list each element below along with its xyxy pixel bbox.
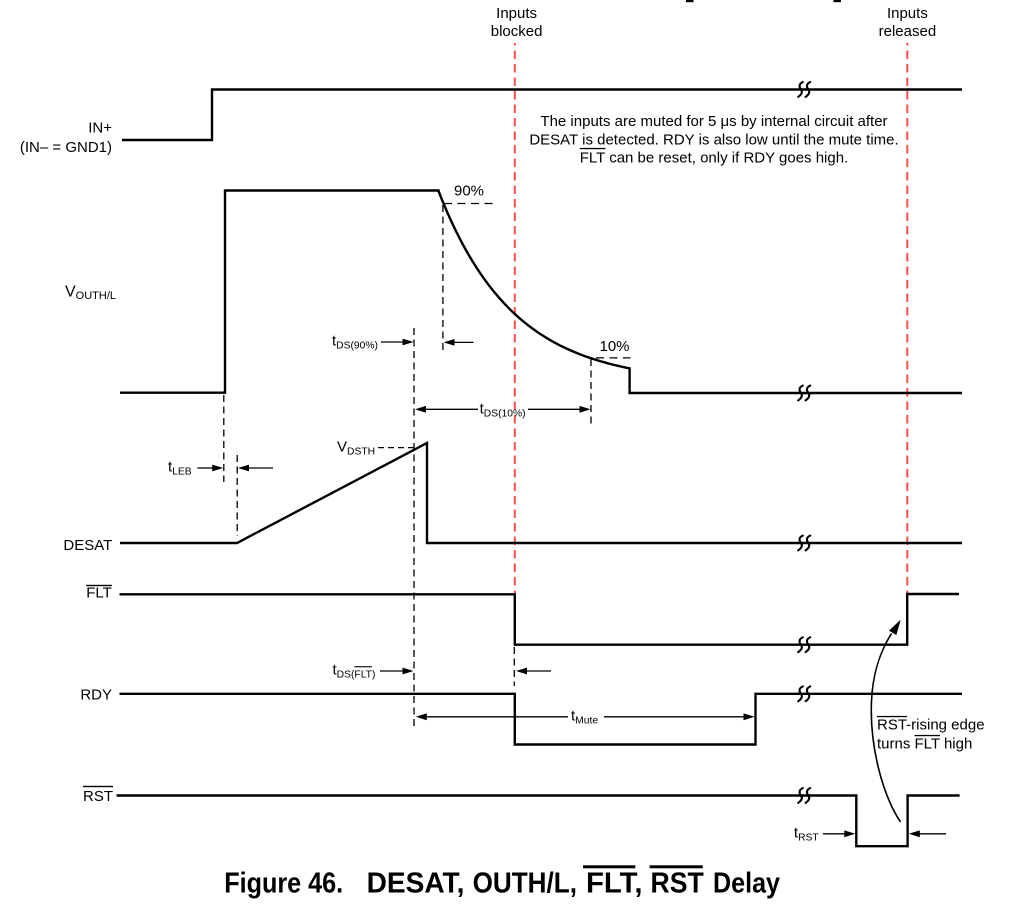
svg-text:Figure 46.: Figure 46. — [224, 868, 343, 900]
svg-text:Delay: Delay — [713, 868, 780, 900]
svg-text:(IN– = GND1): (IN– = GND1) — [20, 139, 112, 156]
svg-text:VDSTH: VDSTH — [337, 439, 375, 458]
svg-text:tDS(90%): tDS(90%) — [332, 333, 378, 352]
svg-text:tDS(FLT): tDS(FLT) — [333, 662, 376, 681]
svg-text:Inputs: Inputs — [887, 5, 928, 22]
svg-text:Inputs: Inputs — [496, 5, 537, 22]
svg-text:90%: 90% — [454, 182, 484, 199]
svg-text:10%: 10% — [600, 338, 630, 355]
svg-text:OUTH/L,: OUTH/L, — [473, 868, 577, 900]
svg-text:DESAT: DESAT — [63, 537, 112, 554]
svg-text:tMute: tMute — [571, 707, 598, 726]
svg-text:blocked: blocked — [491, 23, 543, 40]
svg-text:tLEB: tLEB — [168, 459, 192, 478]
svg-text:turns FLT high: turns FLT high — [877, 736, 972, 753]
svg-text:FLT can be reset, only if RDY: FLT can be reset, only if RDY goes high. — [580, 150, 848, 167]
svg-text:DESAT,: DESAT, — [367, 868, 465, 900]
svg-text:tDS(10%): tDS(10%) — [480, 400, 526, 419]
svg-text:VOUTH/L: VOUTH/L — [65, 283, 116, 302]
svg-text:tRST: tRST — [794, 824, 819, 843]
svg-text:RST: RST — [83, 788, 113, 805]
svg-text:DESAT is detected. RDY is also: DESAT is detected. RDY is also low until… — [529, 131, 898, 148]
svg-text:FLT,: FLT, — [586, 868, 643, 900]
svg-text:The inputs are muted for 5 μs: The inputs are muted for 5 μs by interna… — [540, 113, 887, 130]
svg-text:released: released — [879, 23, 937, 40]
svg-text:RST-rising edge: RST-rising edge — [877, 717, 985, 734]
svg-text:RST: RST — [651, 868, 704, 900]
svg-text:IN+: IN+ — [88, 120, 112, 137]
svg-text:RDY: RDY — [80, 686, 112, 703]
svg-text:FLT: FLT — [86, 585, 112, 602]
